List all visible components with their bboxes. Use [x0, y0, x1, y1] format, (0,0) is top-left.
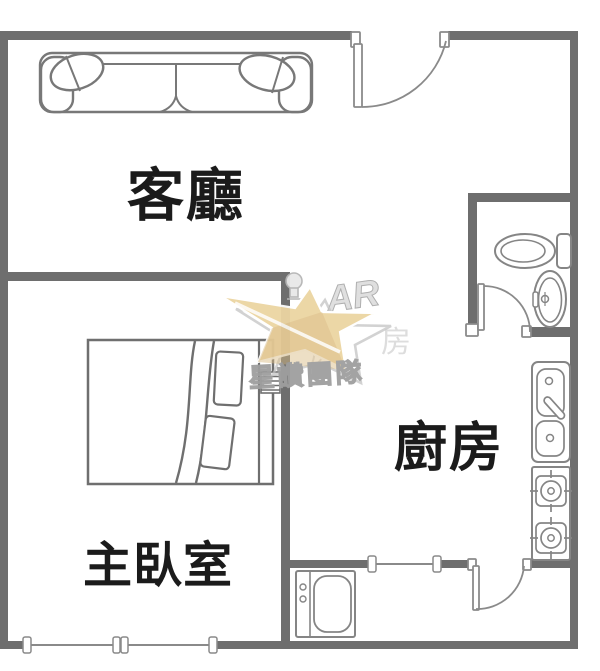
toilet-bowl-inner — [501, 240, 545, 262]
burner-center — [548, 535, 554, 541]
utility-window — [368, 556, 441, 572]
wall-bathroom-top — [468, 193, 570, 202]
bathroom-basin — [533, 271, 566, 327]
wall-left — [0, 31, 8, 649]
floorplan-canvas: 客廳 主臥室 廚房 房 房 AR 星讚團隊 — [0, 0, 600, 671]
door-leaf — [473, 566, 479, 610]
door-swing-arc — [476, 566, 524, 609]
trophy-cup — [286, 273, 302, 289]
kitchen-sink — [532, 362, 570, 462]
wall-bathroom-left — [468, 193, 477, 326]
bed — [88, 340, 273, 484]
master-bedroom-label: 主臥室 — [83, 539, 233, 593]
window-tick — [368, 556, 376, 572]
wall-bottom-right-segment — [215, 641, 578, 649]
kitchen-label: 廚房 — [394, 418, 504, 478]
toilet-tank — [557, 234, 571, 268]
utility-door — [468, 559, 531, 610]
floorplan-drawing: 客廳 主臥室 廚房 房 房 AR 星讚團隊 — [0, 0, 600, 671]
door-jamb — [466, 324, 478, 336]
wall-bedroom-living-divider — [0, 272, 290, 281]
wall-top-right-segment — [448, 31, 578, 40]
wall-utility-left-segment — [281, 560, 372, 568]
window-tick — [113, 637, 120, 653]
wall-bathroom-bottom — [531, 327, 570, 337]
watermark-faint-char: 房 — [381, 326, 411, 359]
sink-drain — [547, 435, 554, 442]
window-tick — [433, 556, 441, 572]
trophy-stem — [290, 288, 298, 297]
washer-knob — [300, 584, 306, 590]
burner-center — [548, 488, 554, 494]
washing-machine — [296, 571, 355, 637]
window-tick — [23, 637, 31, 653]
entrance-door — [351, 32, 449, 107]
toilet — [495, 234, 571, 268]
watermark-team-name: 星讚團隊 — [248, 357, 365, 393]
sofa — [40, 47, 312, 112]
door-leaf — [354, 44, 362, 107]
window-tick — [121, 637, 128, 653]
faucet-lever — [533, 292, 538, 307]
bedroom-window — [23, 637, 217, 653]
washer-knob — [300, 596, 306, 602]
bed-pillow-top — [214, 351, 244, 405]
door-swing-arc — [362, 41, 446, 107]
bed-pillow-bottom — [200, 415, 235, 469]
watermark: 房 房 AR 星讚團隊 — [221, 272, 411, 393]
door-leaf — [478, 284, 484, 330]
wall-utility-right-segment — [528, 560, 570, 568]
washer-lid — [314, 576, 351, 632]
window-tick — [209, 637, 217, 653]
wall-top-left-segment — [0, 31, 352, 40]
wall-right — [570, 31, 578, 649]
wall-utility-mid-segment — [437, 560, 470, 568]
sink-drain — [546, 378, 553, 385]
living-room-label: 客廳 — [127, 164, 245, 228]
gas-stove — [530, 467, 572, 560]
